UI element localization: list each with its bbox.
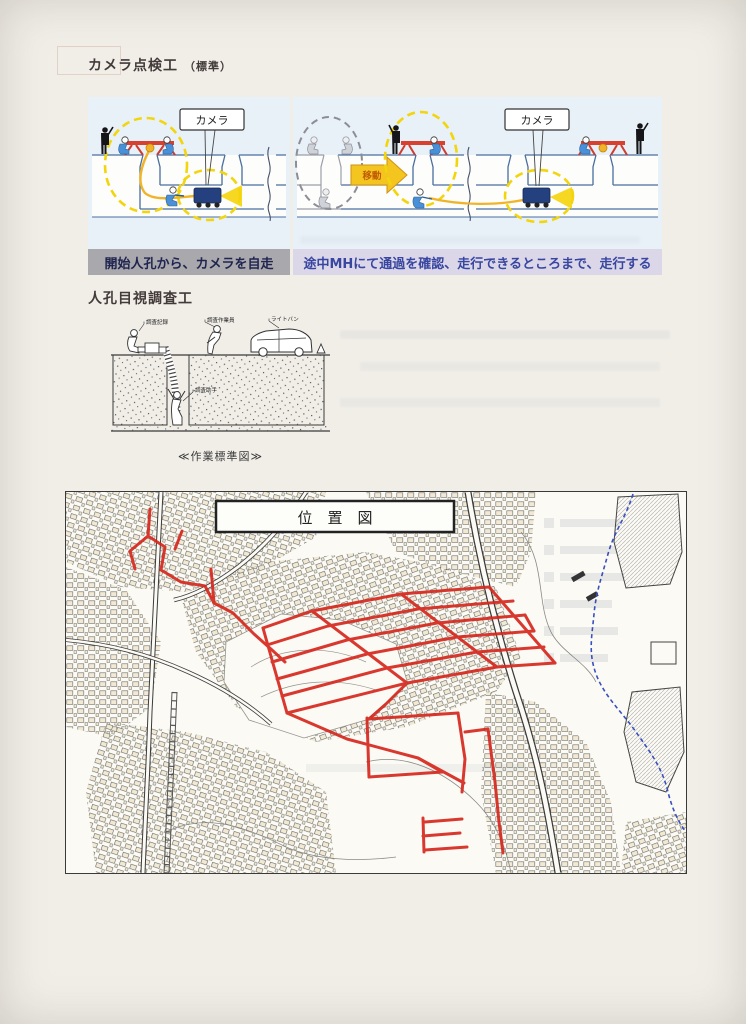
bleed-through-text bbox=[360, 362, 660, 371]
bleed-through-text bbox=[300, 236, 640, 244]
panel-start-manhole: カメラ bbox=[88, 97, 290, 249]
panel-captions: 開始人孔から、カメラを自走 途中MHにて通過を確認、走行できるところまで、走行す… bbox=[88, 249, 662, 275]
work-standard-diagram-caption: ≪作業標準図≫ bbox=[111, 448, 330, 464]
bleed-through-text bbox=[340, 330, 670, 339]
caption-start-manhole: 開始人孔から、カメラを自走 bbox=[88, 249, 290, 275]
light-van bbox=[251, 329, 325, 356]
camera-callout-label: カメラ bbox=[196, 114, 229, 127]
section-title-camera-inspection: カメラ点検工（標準） bbox=[88, 55, 232, 75]
work-standard-diagram: 調査記録 調査作業員 ライトバン 調査助手 bbox=[111, 313, 330, 445]
section-title-manhole-visual-survey: 人孔目視調査工 bbox=[88, 288, 193, 308]
map-title: 位 置 図 bbox=[297, 509, 372, 527]
surveyor-bending bbox=[207, 326, 221, 354]
surveyor-kneeling bbox=[128, 330, 145, 353]
panel-midway-manholes: 移動 bbox=[293, 97, 662, 249]
location-map: 位 置 図 bbox=[65, 491, 687, 874]
label-survey-assistant: 調査助手 bbox=[195, 386, 218, 394]
camera-inspection-illustration: カメラ bbox=[88, 97, 662, 249]
section-title-main: カメラ点検工 bbox=[88, 58, 178, 74]
label-survey-worker: 調査作業員 bbox=[207, 316, 235, 324]
move-arrow-label: 移動 bbox=[362, 170, 382, 182]
label-light-van: ライトバン bbox=[271, 316, 299, 323]
section-title-sub: （標準） bbox=[184, 60, 232, 73]
assistant-in-shaft bbox=[168, 389, 185, 425]
location-map-drawing: 位 置 図 bbox=[66, 492, 686, 873]
map-title-box: 位 置 図 bbox=[216, 501, 454, 532]
bleed-through-text bbox=[340, 398, 660, 407]
camera-callout-label: カメラ bbox=[521, 114, 554, 127]
caption-midway-manhole: 途中MHにて通過を確認、走行できるところまで、走行する bbox=[293, 249, 662, 275]
label-survey-record: 調査記録 bbox=[146, 318, 169, 326]
scanned-document-page: カメラ点検工（標準） bbox=[0, 0, 746, 1024]
